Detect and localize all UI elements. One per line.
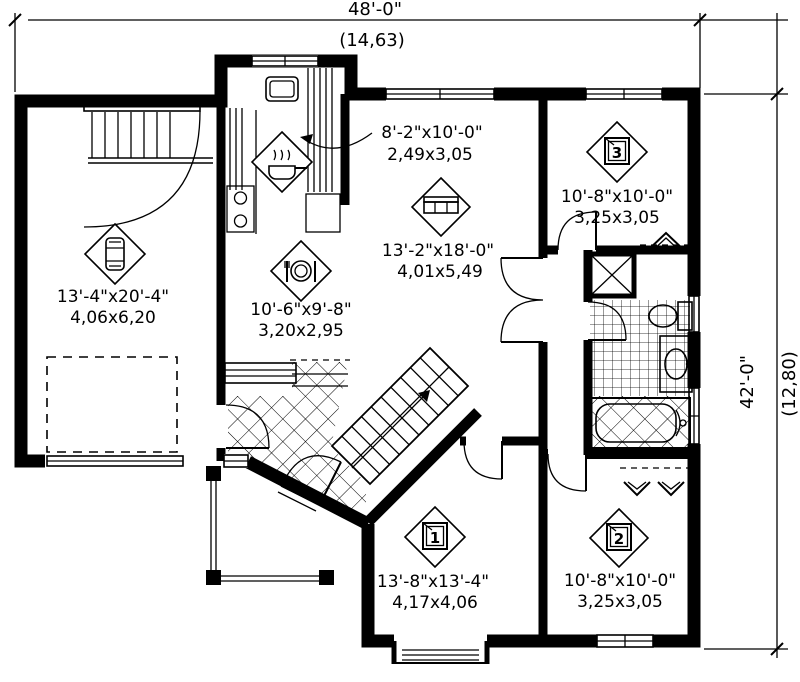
kitchen-sink-icon xyxy=(266,77,298,101)
porch-column xyxy=(319,570,334,585)
living-dim-metric: 4,01x5,49 xyxy=(397,262,483,282)
living-dim-imperial: 13'-2"x18'-0" xyxy=(382,241,494,261)
room-label-bedroom1: 1 13'-8"x13'-4" 4,17x4,06 xyxy=(377,507,489,613)
dining-dim-metric: 3,20x2,95 xyxy=(258,321,344,341)
dim-right-imperial: 42'-0" xyxy=(737,355,758,409)
bedroom2-closet xyxy=(620,468,692,495)
garage-door xyxy=(45,454,185,468)
bed-icon: 1 xyxy=(423,523,447,549)
kitchen-leader-arrow xyxy=(300,133,372,148)
dimension-top: 48'-0" (14,63) xyxy=(9,0,788,92)
bedroom2-dim-imperial: 10'-8"x10'-0" xyxy=(564,571,676,591)
dining-dim-imperial: 10'-6"x9'-8" xyxy=(250,300,351,320)
mudroom-window xyxy=(224,454,248,468)
bedroom3-dim-imperial: 10'-8"x10'-0" xyxy=(561,187,673,207)
room-label-kitchen: 8'-2"x10'-0" 2,49x3,05 xyxy=(252,123,483,192)
bedroom3-window xyxy=(586,89,662,99)
bedroom3-dim-metric: 3,25x3,05 xyxy=(574,208,660,228)
dim-top-metric: (14,63) xyxy=(339,30,405,51)
shower-icon xyxy=(590,254,634,296)
dim-top-imperial: 48'-0" xyxy=(348,0,402,20)
porch-column xyxy=(206,466,221,481)
bedroom2-door xyxy=(548,454,586,491)
bedroom1-door xyxy=(464,441,502,479)
bed-icon: 2 xyxy=(607,524,631,550)
porch-column xyxy=(206,570,221,585)
hall-double-doors xyxy=(501,258,543,342)
floor-plan-canvas: 48'-0" (14,63) 42'-0" (12,80) 13'-4"x20'… xyxy=(0,0,800,682)
dim-right-metric: (12,80) xyxy=(779,351,800,417)
stove-icon xyxy=(227,186,254,232)
garage-dim-metric: 4,06x6,20 xyxy=(70,308,156,328)
bedroom2-dim-metric: 3,25x3,05 xyxy=(577,592,663,612)
floor-plan-drawing: 48'-0" (14,63) 42'-0" (12,80) 13'-4"x20'… xyxy=(0,0,800,682)
foyer-bench xyxy=(225,363,296,383)
bedroom1-bay-window xyxy=(394,641,487,664)
room-label-garage: 13'-4"x20'-4" 4,06x6,20 xyxy=(57,224,169,328)
bedroom3-number: 3 xyxy=(612,144,622,162)
living-room-window xyxy=(378,89,502,99)
kitchen-dim-metric: 2,49x3,05 xyxy=(387,145,473,165)
main-stairs xyxy=(332,348,468,484)
kitchen-window xyxy=(252,55,318,67)
fridge-icon xyxy=(306,194,340,232)
bedroom1-dim-metric: 4,17x4,06 xyxy=(392,593,478,613)
room-label-dining: 10'-6"x9'-8" 3,20x2,95 xyxy=(250,241,351,341)
bedroom2-window xyxy=(597,634,653,648)
bed-icon: 3 xyxy=(605,138,629,164)
garage-stair-door xyxy=(84,97,200,227)
room-label-bedroom2: 2 10'-8"x10'-0" 3,25x3,05 xyxy=(564,509,676,612)
bedroom1-dim-imperial: 13'-8"x13'-4" xyxy=(377,572,489,592)
room-label-living: 13'-2"x18'-0" 4,01x5,49 xyxy=(382,178,494,282)
bedroom1-number: 1 xyxy=(430,529,440,547)
dimension-right: 42'-0" (12,80) xyxy=(704,13,800,658)
parking-outline xyxy=(47,357,177,452)
bedroom2-number: 2 xyxy=(614,530,624,548)
kitchen-dim-imperial: 8'-2"x10'-0" xyxy=(381,123,482,143)
room-label-bedroom3: 3 10'-8"x10'-0" 3,25x3,05 xyxy=(561,122,673,228)
garage-dim-imperial: 13'-4"x20'-4" xyxy=(57,287,169,307)
